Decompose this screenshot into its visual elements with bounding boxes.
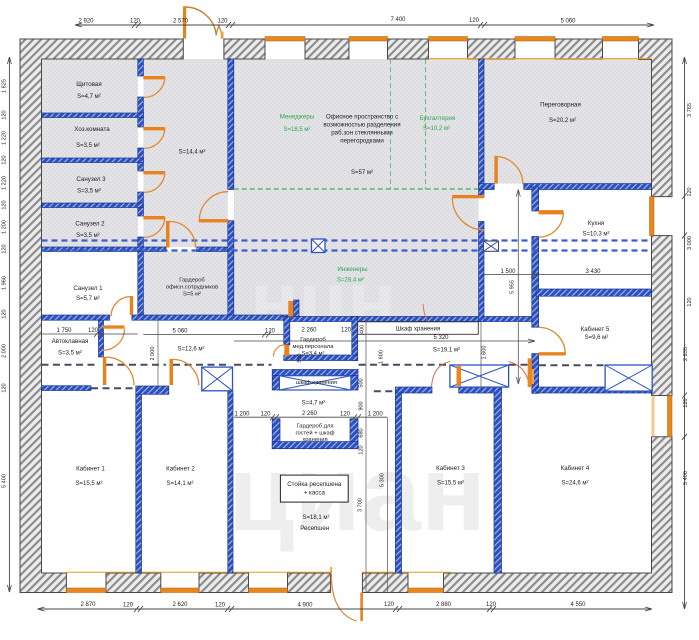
svg-text:500: 500: [297, 353, 303, 362]
svg-text:2 260: 2 260: [302, 411, 318, 417]
svg-text:500: 500: [359, 378, 365, 387]
svg-text:S=10,2 м²: S=10,2 м²: [423, 126, 450, 132]
svg-text:120: 120: [130, 19, 141, 25]
svg-text:120: 120: [359, 445, 365, 454]
svg-text:2 000: 2 000: [150, 347, 156, 361]
svg-text:S=24,6 м²: S=24,6 м²: [562, 481, 589, 487]
svg-text:2 260: 2 260: [301, 328, 317, 334]
svg-text:S=28,4 м²: S=28,4 м²: [337, 278, 364, 284]
svg-text:S=19,1 м²: S=19,1 м²: [433, 348, 460, 354]
svg-text:1 960: 1 960: [2, 276, 8, 290]
svg-text:Санузел 1: Санузел 1: [73, 285, 103, 292]
svg-text:S=3,4 м²: S=3,4 м²: [302, 351, 325, 357]
svg-text:120: 120: [341, 328, 352, 334]
svg-text:1 625: 1 625: [2, 79, 8, 93]
svg-text:+ касса: + касса: [304, 490, 326, 497]
svg-text:перегородками: перегородками: [340, 138, 384, 145]
svg-text:120: 120: [215, 603, 226, 609]
svg-text:возможностью разделения: возможностью разделения: [323, 122, 400, 129]
svg-text:S=3,5 м²: S=3,5 м²: [58, 351, 82, 357]
svg-text:120: 120: [687, 187, 693, 196]
svg-text:S=20,2 м²: S=20,2 м²: [549, 118, 576, 124]
svg-text:Кабинет 4: Кабинет 4: [561, 465, 590, 472]
svg-text:120: 120: [2, 309, 8, 318]
svg-text:Стойка ресепшена: Стойка ресепшена: [287, 481, 342, 488]
svg-text:5 955: 5 955: [510, 280, 516, 294]
svg-text:1 220: 1 220: [2, 176, 8, 190]
svg-text:Шкаф хранения: Шкаф хранения: [396, 327, 440, 333]
svg-text:Ресепшен: Ресепшен: [300, 525, 329, 532]
svg-text:3 000: 3 000: [687, 236, 693, 250]
svg-text:400: 400: [360, 325, 366, 334]
svg-text:Кабинет 5: Кабинет 5: [581, 326, 610, 333]
svg-text:S=18,1 м²: S=18,1 м²: [303, 515, 330, 521]
svg-text:S=18,5 м²: S=18,5 м²: [284, 127, 311, 133]
svg-text:Хоз.комната: Хоз.комната: [74, 126, 110, 133]
svg-text:120: 120: [265, 329, 276, 335]
svg-text:4 550: 4 550: [570, 602, 586, 608]
svg-text:мед.персонала: мед.персонала: [293, 344, 335, 350]
svg-text:5 400: 5 400: [683, 471, 689, 485]
svg-text:S=4,7 м²: S=4,7 м²: [302, 401, 326, 407]
svg-text:Кабинет 2: Кабинет 2: [166, 466, 195, 473]
svg-text:S=4,7 м²: S=4,7 м²: [77, 94, 101, 100]
svg-text:S=3,5 м²: S=3,5 м²: [77, 189, 101, 195]
svg-text:120: 120: [2, 383, 8, 392]
svg-text:120: 120: [2, 155, 8, 164]
svg-text:3 430: 3 430: [585, 269, 601, 275]
svg-text:офисн.сотрудников: офисн.сотрудников: [166, 285, 218, 291]
svg-text:Кабинет 3: Кабинет 3: [436, 465, 465, 472]
svg-text:Бухгалтерия: Бухгалтерия: [420, 115, 456, 122]
svg-text:Переговорная: Переговорная: [540, 102, 581, 109]
svg-text:5 060: 5 060: [172, 329, 188, 335]
svg-text:Менеджеры: Менеджеры: [280, 114, 315, 121]
svg-text:120: 120: [260, 412, 271, 418]
svg-text:4 900: 4 900: [297, 603, 313, 609]
svg-text:120: 120: [469, 18, 480, 24]
svg-text:S=15,5 м²: S=15,5 м²: [437, 481, 464, 487]
svg-text:S=15,5 м²: S=15,5 м²: [76, 481, 103, 487]
svg-text:Инженеры: Инженеры: [337, 266, 368, 273]
svg-text:2 880: 2 880: [436, 602, 452, 608]
svg-text:1 200: 1 200: [368, 412, 384, 418]
svg-text:S=5,7 м²: S=5,7 м²: [76, 296, 100, 302]
svg-text:1 200: 1 200: [2, 220, 8, 234]
svg-text:S=9,6 м²: S=9,6 м²: [585, 335, 609, 341]
svg-text:2 835: 2 835: [683, 347, 689, 361]
svg-text:2 920: 2 920: [78, 19, 94, 25]
svg-text:S=10,3 м²: S=10,3 м²: [583, 232, 610, 238]
svg-text:120: 120: [2, 244, 8, 253]
svg-text:S=57 м²: S=57 м²: [351, 170, 373, 176]
svg-text:Гардероб: Гардероб: [179, 278, 205, 284]
svg-text:S=3,5 м²: S=3,5 м²: [76, 233, 100, 239]
svg-text:120: 120: [683, 398, 689, 407]
svg-text:1 500: 1 500: [500, 269, 516, 275]
svg-text:7 400: 7 400: [390, 17, 406, 23]
svg-text:шкаф хранения: шкаф хранения: [296, 380, 337, 386]
svg-text:1 220: 1 220: [2, 131, 8, 145]
svg-text:3 700: 3 700: [358, 498, 364, 512]
svg-text:Санузел 2: Санузел 2: [75, 221, 105, 228]
svg-text:2 000: 2 000: [2, 344, 8, 358]
svg-text:Кабинет 1: Кабинет 1: [76, 466, 105, 473]
svg-text:Кухня: Кухня: [588, 220, 605, 227]
svg-text:5 300: 5 300: [380, 473, 386, 487]
svg-text:S=14,1 м²: S=14,1 м²: [167, 481, 194, 487]
svg-text:Щитовая: Щитовая: [76, 81, 101, 88]
svg-text:5 060: 5 060: [560, 19, 576, 25]
svg-text:S=3,5 м²: S=3,5 м²: [76, 143, 100, 149]
svg-text:120: 120: [123, 603, 134, 609]
svg-text:120: 120: [687, 297, 693, 306]
svg-text:Гардероб для: Гардероб для: [296, 424, 333, 430]
svg-text:120: 120: [2, 110, 8, 119]
svg-text:циан: циан: [228, 432, 486, 553]
svg-text:5 320: 5 320: [433, 335, 449, 341]
svg-text:1 200: 1 200: [234, 412, 250, 418]
svg-text:2 870: 2 870: [80, 602, 96, 608]
svg-text:680: 680: [359, 428, 365, 437]
svg-text:S=12,6 м²: S=12,6 м²: [178, 347, 205, 353]
svg-text:Офисное пространство с: Офисное пространство с: [326, 114, 398, 121]
svg-text:120: 120: [217, 19, 228, 25]
svg-text:120: 120: [340, 412, 351, 418]
svg-text:1 750: 1 750: [56, 328, 72, 334]
svg-text:120: 120: [384, 602, 395, 608]
svg-text:1 600: 1 600: [378, 350, 384, 364]
svg-text:2 570: 2 570: [173, 19, 189, 25]
svg-text:900: 900: [359, 401, 365, 410]
svg-text:120: 120: [2, 200, 8, 209]
svg-text:1 600: 1 600: [482, 346, 488, 360]
svg-text:120: 120: [486, 602, 497, 608]
svg-text:Автоклавная: Автоклавная: [52, 338, 89, 345]
svg-text:S=5 м²: S=5 м²: [183, 292, 201, 298]
svg-text:S=14,4 м²: S=14,4 м²: [179, 150, 206, 156]
svg-text:5 400: 5 400: [2, 474, 8, 488]
svg-text:раб.зон стеклянными: раб.зон стеклянными: [331, 130, 393, 137]
svg-text:2 620: 2 620: [172, 602, 188, 608]
svg-text:гостей + шкаф: гостей + шкаф: [295, 430, 334, 437]
svg-text:120: 120: [88, 328, 99, 334]
svg-text:хранения: хранения: [302, 437, 327, 443]
svg-text:3 765: 3 765: [687, 103, 693, 117]
svg-text:Гардероб: Гардероб: [300, 337, 326, 343]
svg-text:Санузел 3: Санузел 3: [76, 176, 106, 183]
